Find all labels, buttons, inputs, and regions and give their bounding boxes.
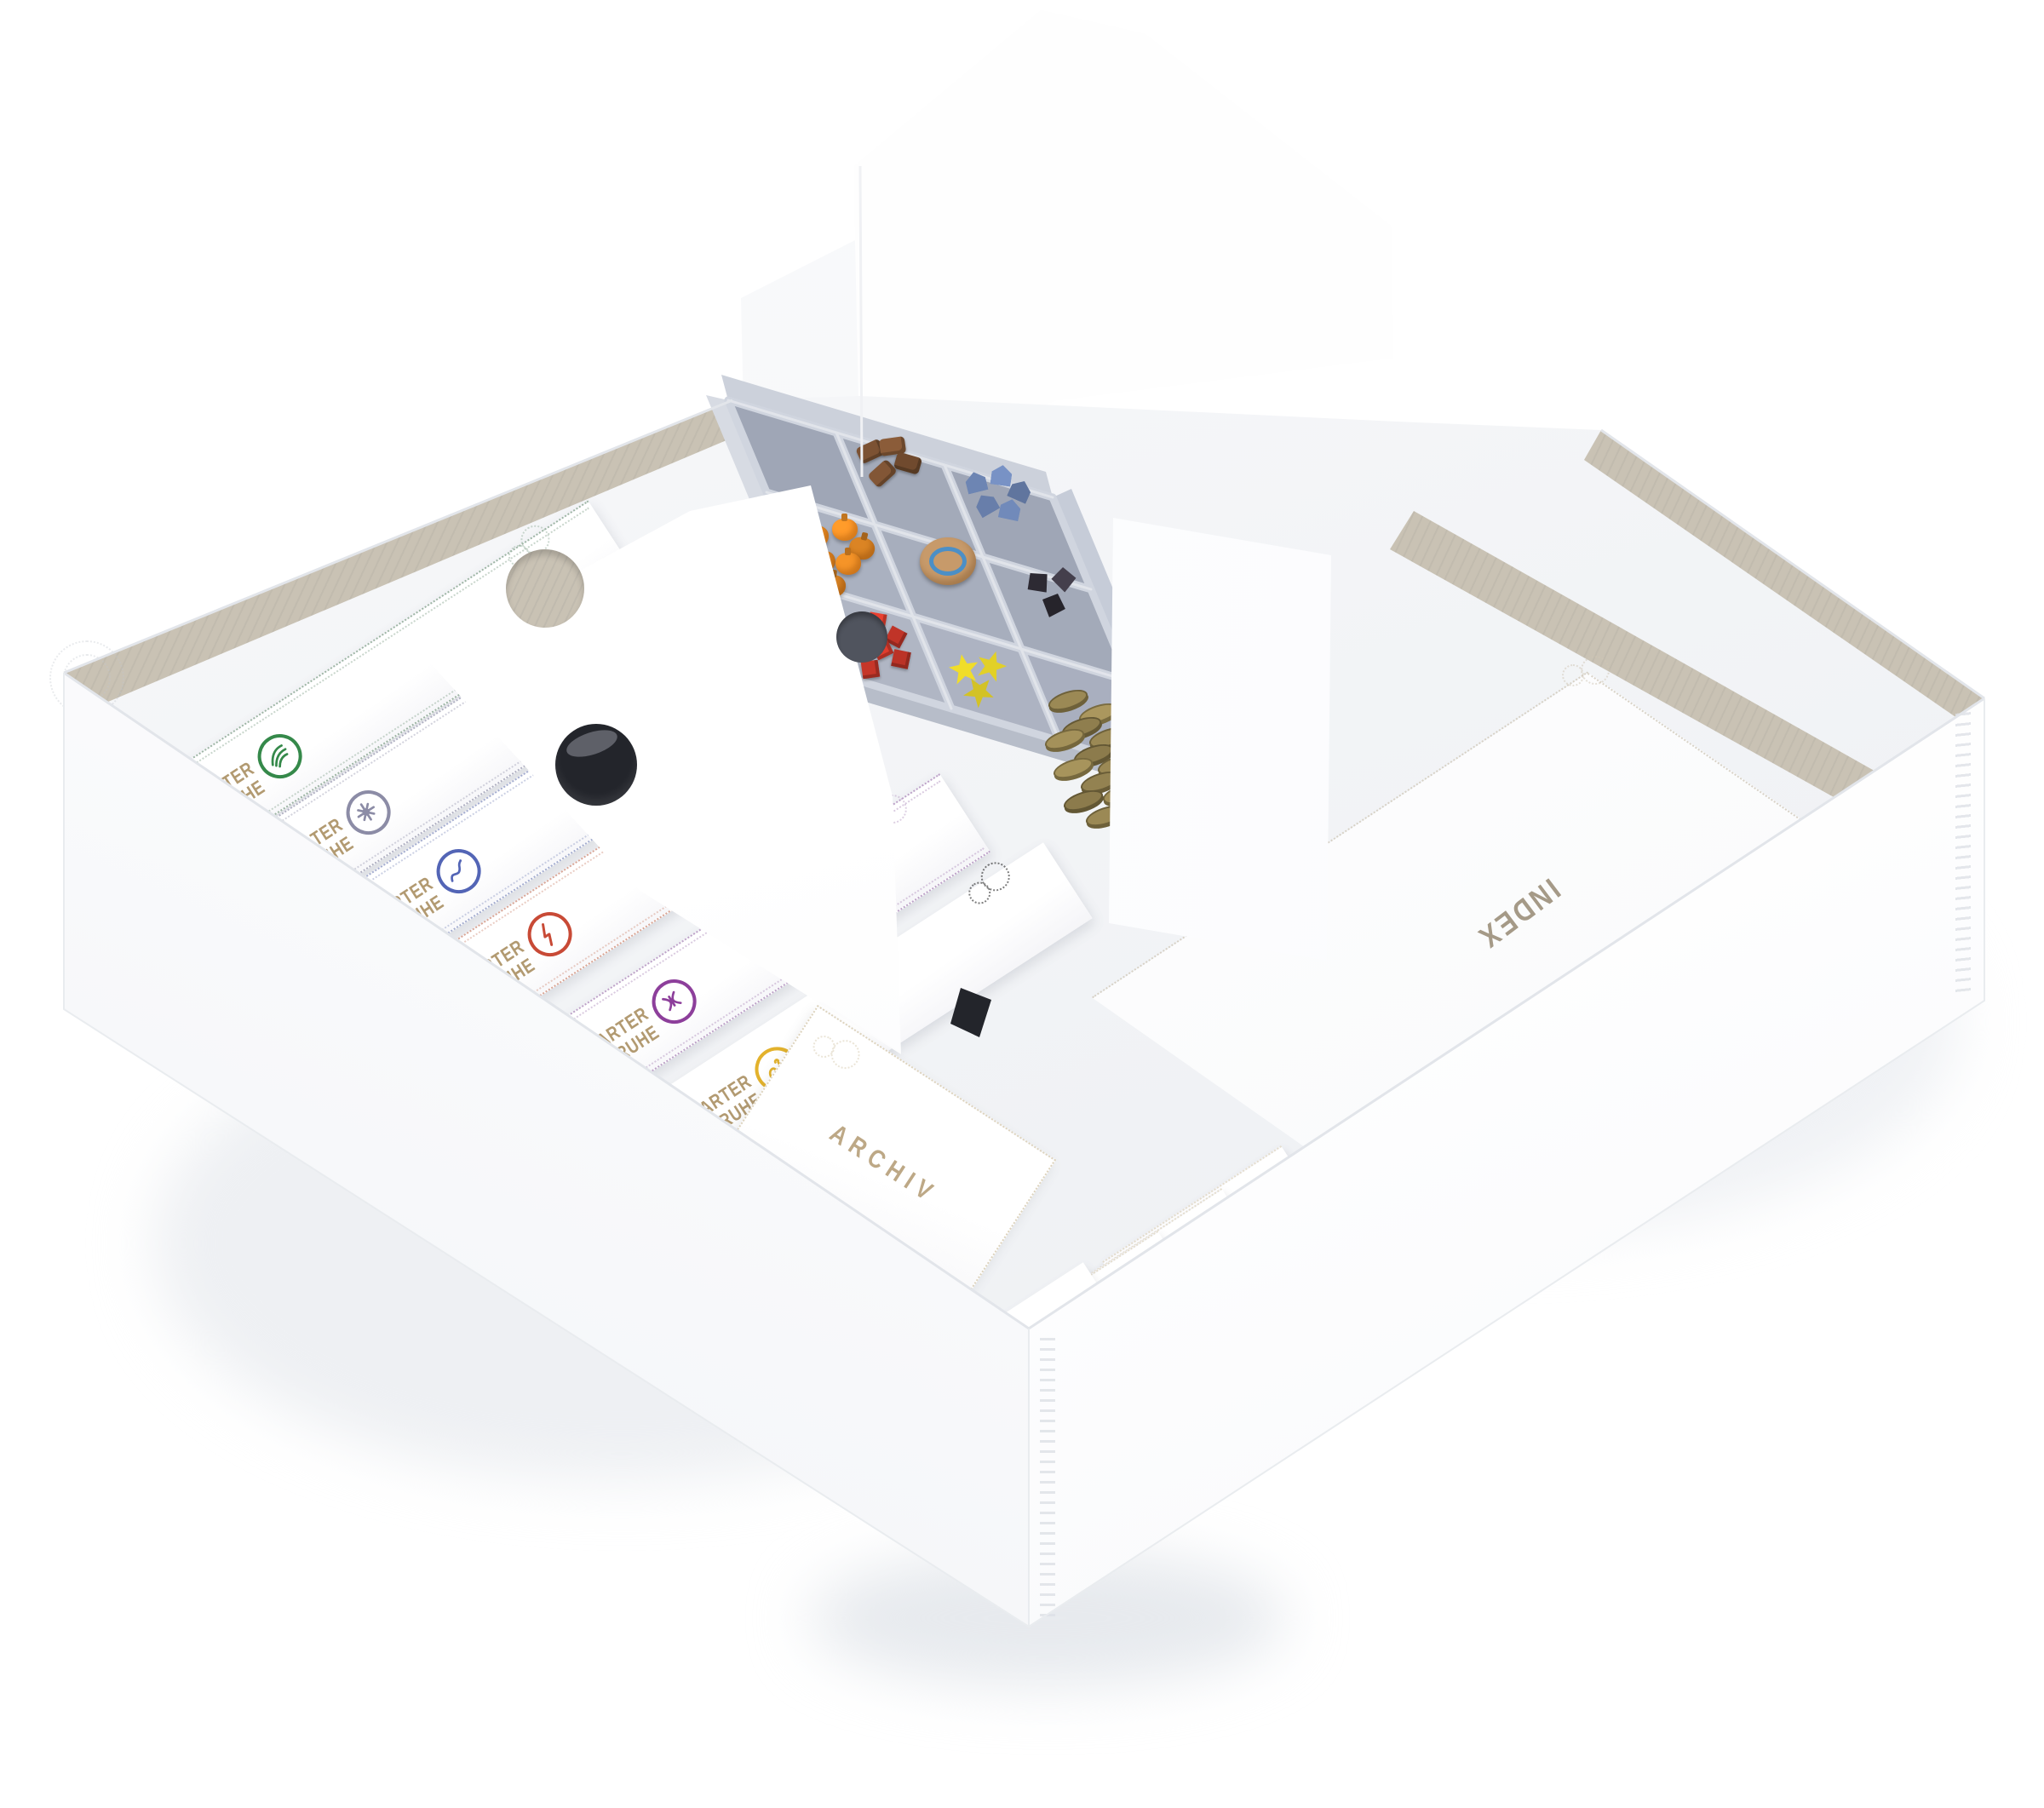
corner-ornament-strip [1955,708,1971,997]
finger-notch-small [836,611,887,663]
finger-notch-cards [555,724,637,806]
index-corner-ornament [1560,654,1610,692]
corner-ornament [805,1022,867,1080]
finger-notch-chipboard [506,549,584,628]
photo-open-game-box: INDEX [0,0,2044,1808]
corner-ornament-strip [1040,1334,1055,1623]
